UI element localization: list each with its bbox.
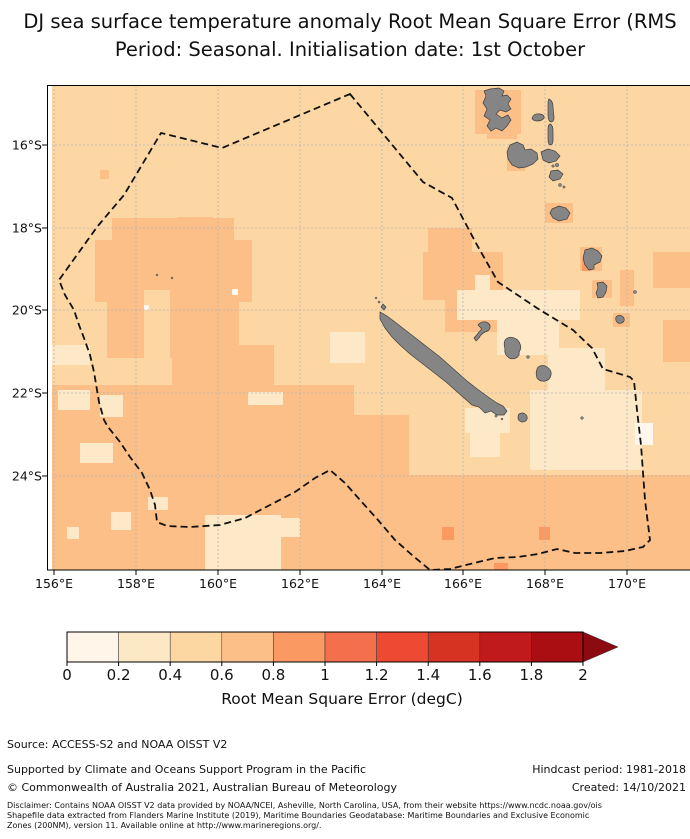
rmse-patch-bin4 bbox=[663, 320, 690, 362]
island-aoba bbox=[532, 114, 544, 121]
colorbar-segment bbox=[377, 632, 429, 662]
islet-walpole bbox=[581, 417, 584, 420]
islet-reef-islet bbox=[171, 277, 173, 279]
colorbar-segment bbox=[480, 632, 532, 662]
disclaimer-line: Zones (200NM), version 11. Available onl… bbox=[7, 821, 690, 831]
islet-lopevi bbox=[555, 163, 559, 167]
copyright-text: © Commonwealth of Australia 2021, Austra… bbox=[7, 781, 397, 794]
lon-tick-label: 164°E bbox=[363, 576, 401, 591]
rmse-patch-bin2 bbox=[470, 433, 500, 457]
rmse-patch-bin1 bbox=[232, 289, 238, 295]
islet-belep-islet bbox=[378, 301, 380, 303]
rmse-patch-bin2 bbox=[262, 518, 300, 537]
lat-tick-label: 24°S bbox=[2, 469, 42, 484]
hindcast-period-text: Hindcast period: 1981-2018 bbox=[532, 763, 686, 776]
rmse-patch-bin2 bbox=[148, 497, 168, 510]
colorbar-segment bbox=[170, 632, 222, 662]
islet-belep-islet bbox=[375, 297, 377, 299]
lat-tick-label: 18°S bbox=[2, 221, 42, 236]
colorbar-tick-label: 1.6 bbox=[468, 666, 492, 684]
rmse-patch-base bbox=[144, 290, 170, 365]
islet-islet-south-lagoon bbox=[495, 415, 497, 417]
footer-row: © Commonwealth of Australia 2021, Austra… bbox=[7, 781, 686, 794]
islet-islet-south-lagoon bbox=[501, 418, 503, 420]
islet-tongariki bbox=[563, 186, 565, 188]
island-aneityum bbox=[616, 315, 625, 323]
lat-tick-label: 16°S bbox=[2, 138, 42, 153]
lon-tick-label: 168°E bbox=[526, 576, 564, 591]
island-ile-des-pins bbox=[518, 413, 527, 422]
disclaimer-line: Disclaimer: Contains NOAA OISST V2 data … bbox=[7, 801, 690, 811]
chart-subtitle: Period: Seasonal. Initialisation date: 1… bbox=[115, 38, 585, 61]
map bbox=[42, 85, 690, 575]
colorbar-segment bbox=[273, 632, 325, 662]
disclaimer-line: Shapefile data extracted from Flanders M… bbox=[7, 811, 690, 821]
colorbar-tick-label: 1.4 bbox=[416, 666, 440, 684]
colorbar-extend-arrow bbox=[583, 632, 618, 662]
colorbar-tick-label: 0.6 bbox=[210, 666, 234, 684]
colorbar-label: Root Mean Square Error (degC) bbox=[221, 690, 463, 708]
rmse-patch-bin2 bbox=[67, 527, 79, 539]
colorbar-segment bbox=[428, 632, 480, 662]
colorbar-tick-label: 2 bbox=[578, 666, 588, 684]
figure: DJ sea surface temperature anomaly Root … bbox=[0, 0, 690, 839]
islet-paama bbox=[552, 165, 555, 168]
source-text: Source: ACCESS-S2 and NOAA OISST V2 bbox=[7, 738, 227, 751]
lon-tick-label: 156°E bbox=[35, 576, 73, 591]
footer-row: Supported by Climate and Oceans Support … bbox=[7, 763, 686, 776]
chart-title: DJ sea surface temperature anomaly Root … bbox=[23, 10, 676, 33]
colorbar-tick-label: 1 bbox=[320, 666, 330, 684]
rmse-patch-bin4 bbox=[95, 240, 252, 302]
colorbar-tick-label: 1.8 bbox=[519, 666, 543, 684]
rmse-patch-bin5 bbox=[442, 527, 454, 540]
rmse-patch-bin2 bbox=[47, 345, 90, 365]
islet-tongoa bbox=[558, 183, 561, 186]
rmse-patch-bin5 bbox=[539, 527, 550, 540]
supported-by-text: Supported by Climate and Oceans Support … bbox=[7, 763, 366, 776]
colorbar-tick-label: 0.8 bbox=[261, 666, 285, 684]
lat-tick-label: 22°S bbox=[2, 386, 42, 401]
lat-tick-label: 20°S bbox=[2, 303, 42, 318]
islet-reef-islet bbox=[156, 274, 158, 276]
island-pentecost bbox=[548, 124, 553, 145]
lon-tick-label: 160°E bbox=[199, 576, 237, 591]
rmse-patch-bin4 bbox=[620, 270, 634, 306]
colorbar-segment bbox=[119, 632, 171, 662]
lon-tick-label: 170°E bbox=[608, 576, 646, 591]
rmse-patch-bin1 bbox=[144, 305, 149, 310]
colorbar-tick-label: 1.2 bbox=[365, 666, 389, 684]
created-date-text: Created: 14/10/2021 bbox=[572, 781, 686, 794]
lon-tick-label: 162°E bbox=[281, 576, 319, 591]
colorbar-segment bbox=[325, 632, 377, 662]
rmse-patch-bin2 bbox=[475, 275, 490, 290]
colorbar-tick-label: 0.2 bbox=[107, 666, 131, 684]
colorbar-tick-label: 0 bbox=[62, 666, 72, 684]
rmse-patch-bin2 bbox=[330, 332, 365, 363]
rmse-patch-bin2 bbox=[248, 392, 283, 405]
rmse-patch-bin4 bbox=[177, 217, 213, 231]
colorbar bbox=[0, 625, 690, 669]
rmse-patch-bin2 bbox=[100, 395, 123, 417]
rmse-patch-bin2 bbox=[80, 443, 113, 463]
map-layers bbox=[47, 85, 690, 571]
islet-tiga bbox=[527, 356, 530, 359]
title-block: DJ sea surface temperature anomaly Root … bbox=[0, 0, 690, 70]
colorbar-segment bbox=[531, 632, 583, 662]
lon-tick-label: 166°E bbox=[444, 576, 482, 591]
colorbar-segment bbox=[67, 632, 119, 662]
rmse-patch-bin4 bbox=[100, 170, 109, 179]
colorbar-segment bbox=[222, 632, 274, 662]
rmse-patch-bin4 bbox=[653, 252, 690, 288]
islet-futuna bbox=[633, 290, 636, 293]
island-lifou bbox=[504, 337, 521, 359]
rmse-patch-bin4 bbox=[428, 228, 472, 253]
disclaimer-block: Disclaimer: Contains NOAA OISST V2 data … bbox=[7, 801, 690, 830]
rmse-patch-bin2 bbox=[111, 512, 131, 530]
colorbar-tick-label: 0.4 bbox=[158, 666, 182, 684]
lon-tick-label: 158°E bbox=[117, 576, 155, 591]
rmse-patch-bin2 bbox=[530, 390, 642, 470]
rmse-patch-bin1 bbox=[635, 423, 653, 445]
rmse-patch-bin2 bbox=[58, 390, 90, 410]
